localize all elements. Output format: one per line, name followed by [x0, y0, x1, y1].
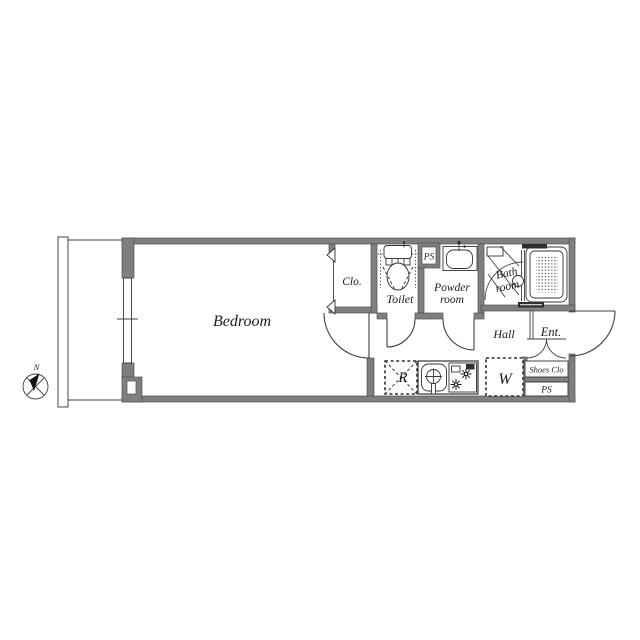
bathtub-mat: [536, 257, 558, 293]
compass: N: [23, 362, 48, 399]
wall-segment: [569, 354, 575, 402]
closet-label: Clo.: [342, 276, 362, 288]
entrance: Ent.: [540, 311, 615, 356]
wall-segment: [367, 358, 374, 396]
wall-segment: [371, 244, 377, 313]
sink-icon: [447, 250, 473, 269]
powder-door-arc: [443, 319, 474, 350]
wall-segment: [122, 238, 134, 278]
faucet-stem: [432, 384, 436, 395]
bedroom-window: [117, 278, 138, 363]
balcony-railing: [58, 237, 68, 407]
stove-grill: [452, 366, 461, 372]
hall: Hall: [492, 311, 533, 341]
wall-segment: [474, 313, 484, 319]
kitchen: R: [385, 361, 478, 394]
front-door-arc: [570, 311, 615, 356]
wall-segment: [122, 238, 575, 244]
wall-segment: [525, 377, 569, 382]
wall-segment: [418, 267, 424, 313]
shoes-closet-label: Shoes Clo: [529, 365, 563, 375]
compass-north-label: N: [33, 362, 41, 372]
toilet-door-arc: [387, 319, 415, 347]
bath-vent: [522, 244, 547, 249]
bedroom-room: Bedroom: [213, 313, 369, 358]
closet-room: Clo.: [327, 248, 362, 314]
washer-label: W: [498, 371, 513, 388]
bath-room: Bath room: [485, 244, 567, 308]
bedroom-door-arc: [324, 313, 369, 358]
entrance-label: Ent.: [540, 325, 561, 339]
refrigerator-label: R: [397, 370, 407, 386]
bedroom-label: Bedroom: [213, 313, 271, 330]
toilet-room: Toilet: [378, 241, 418, 347]
window-icon: [124, 278, 132, 363]
ps-top-label: PS: [423, 253, 435, 263]
bath-shelf: [487, 247, 503, 256]
shoes-closet: Shoes Clo PS: [525, 339, 568, 396]
shoes-door-arc: [527, 339, 547, 358]
balcony: [58, 237, 122, 407]
wall-segment: [377, 313, 387, 319]
pipe-shaft-top: PS: [418, 243, 440, 268]
powder-label-line1: Powder: [433, 282, 470, 294]
wall-segment: [329, 307, 377, 313]
wall-segment: [122, 363, 134, 377]
washer-space: W: [486, 358, 523, 396]
wall-segment: [415, 313, 443, 319]
wall-segment: [122, 396, 575, 402]
wall-segment: [569, 238, 575, 312]
stove-display: [466, 364, 475, 370]
toilet-icon: [387, 263, 409, 290]
shoes-door-arc: [547, 339, 567, 358]
ps-bottom-label: PS: [540, 386, 552, 396]
toilet-tank: [384, 246, 412, 259]
wall-niche: [127, 381, 136, 394]
wall-segment: [478, 244, 484, 313]
floor-plan: N Bedroom Clo.: [0, 0, 640, 640]
powder-label-line2: room: [440, 294, 464, 306]
hall-label: Hall: [492, 327, 515, 341]
toilet-label: Toilet: [387, 292, 415, 306]
toilet-button: [403, 241, 405, 243]
